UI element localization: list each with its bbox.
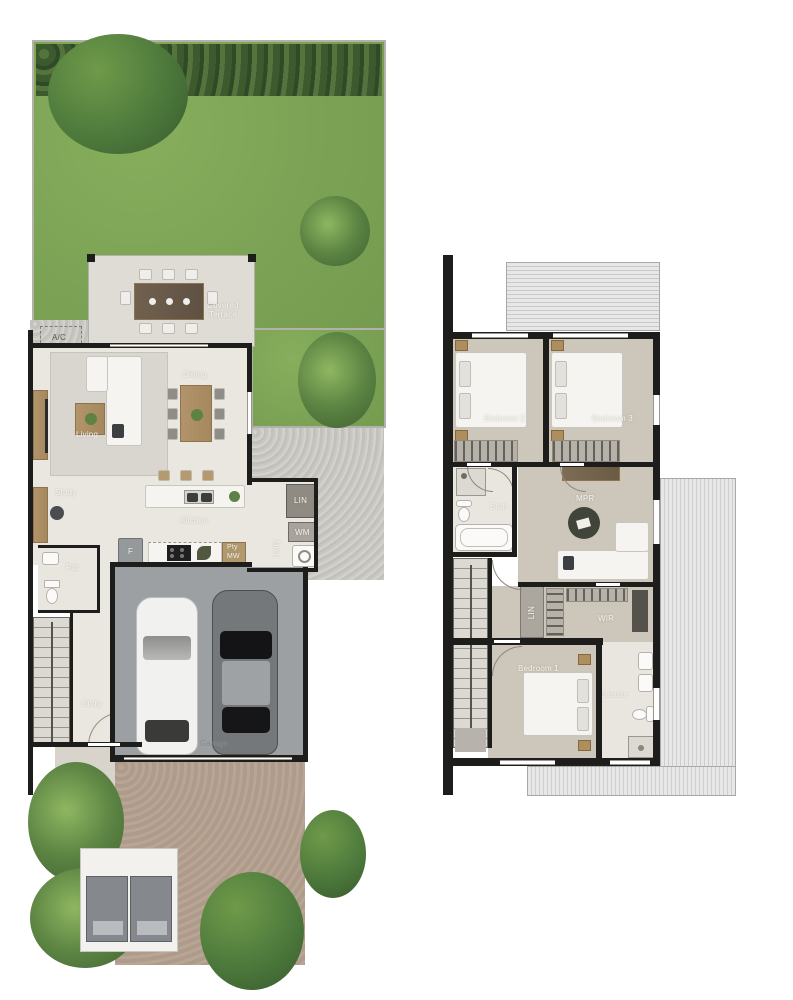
wall [247,478,318,482]
linen-label: LIN [294,496,307,505]
wir-hanging-clothes [566,588,628,602]
pillow [577,707,589,731]
plate [166,298,173,305]
ac-label: A/C [52,333,66,342]
linen-closet: LIN [286,484,316,518]
stair-rail [51,622,53,742]
car-rear-window [145,720,189,742]
laundry-label: Ldry [272,539,281,555]
cooktop [167,545,191,561]
large-tree [48,34,188,154]
roof-bottom [527,766,736,796]
wall [28,742,142,747]
wall [70,613,73,745]
sliding-door [110,344,208,347]
terrace-label: Covered Terrace [199,301,247,319]
window [472,333,528,338]
bin-lid [93,921,123,935]
bedside-table [578,740,591,751]
wall [596,638,602,766]
wall [97,545,100,613]
terrace-post [248,254,256,262]
study-label: Study [55,488,76,497]
street-tree [200,872,304,990]
wall [38,545,100,548]
wall [110,567,115,762]
window [553,333,628,338]
vanity-basin [638,652,653,670]
wall [443,638,603,645]
wm-label: WM [295,528,310,537]
window [653,688,660,720]
car-dark [212,590,278,755]
garage-label: Garage [200,739,228,748]
bath-toilet-tank [456,500,472,507]
pdr-label: Pdr [66,563,79,572]
door-gap [494,640,520,643]
bedroom3-label: Bedroom 3 [592,414,633,423]
garage-door [124,757,292,760]
table-plant [85,413,97,425]
bathtub-inner [460,528,508,547]
stair-landing [455,728,486,752]
bath-label: Bath [490,502,507,511]
wir-robe-column [546,588,564,636]
wall [38,610,100,613]
upper-floor-plan: Bedroom 2 Bedroom 3 MPR Bath LIN WIR Bed… [400,0,793,1000]
washing-machine: WM [288,522,316,542]
window [610,760,650,765]
car-windshield [220,631,272,659]
floorplan-canvas: { "ground": { "name": "Ground Floor Plan… [0,0,793,1000]
burner [180,548,184,552]
round-rug [568,507,600,539]
burner [170,554,174,558]
bin-unit [86,876,128,942]
stair-rail [470,565,472,743]
window [500,760,555,765]
covered-terrace: Covered Terrace [88,255,255,347]
dining-table [180,385,212,442]
pdr-toilet-bowl [46,588,58,604]
dining-chair [214,428,225,440]
kitchen-label: Kitchen [180,516,208,525]
entry-label: Entry [82,699,102,708]
wall [28,330,33,795]
dining-chair [167,428,178,440]
ground-floor-plan: A/C Covered Terrace Living [0,0,400,1000]
kitchen-bench [148,542,222,563]
car-rear-window [222,707,270,733]
bedside-table [551,340,564,351]
upper-linen-label: LIN [527,606,536,619]
pantry-label: Pty [227,544,238,552]
ensuite-toilet-bowl [632,709,647,720]
palm-cluster [298,332,376,428]
wall [512,466,517,554]
bedside-table [578,654,591,665]
outdoor-table [134,283,204,320]
outdoor-chair [185,323,198,334]
plate [149,298,156,305]
laundry-tub [292,545,316,567]
outdoor-chair [162,269,175,280]
plate [183,298,190,305]
car-windshield [143,636,191,660]
window [653,395,660,425]
living-label: Living [76,430,98,439]
wall [452,552,517,557]
fridge-label: F [128,547,133,556]
window [247,392,252,434]
dining-label: Dining [183,370,207,379]
kitchen-island [145,485,245,508]
sofa-chaise [86,356,108,392]
dining-chair [167,408,178,420]
pillow [577,679,589,703]
car-white [136,597,198,755]
pdr-basin [42,552,59,565]
staircase-ground [33,617,70,745]
upper-linen: LIN [520,586,544,638]
roof-side [660,478,736,768]
mpr-label: MPR [576,494,594,503]
ensuite-label: Ensuite [600,690,628,699]
microwave-label: MW [227,553,240,561]
ensuite-shower [628,736,654,758]
pillow [555,393,567,419]
wall [110,562,252,567]
outdoor-chair [185,269,198,280]
bar-stool [180,470,192,481]
wir-drawers [632,590,648,632]
bin-unit [130,876,172,942]
herb-plant [229,491,240,502]
staircase-upper [453,558,488,748]
roof-terrace-below [506,262,660,331]
outdoor-chair [139,269,152,280]
tv-unit [33,390,48,460]
burner [180,554,184,558]
outdoor-chair [162,323,175,334]
sink-bowl [201,493,212,502]
wall [543,336,549,466]
wall [303,567,308,762]
pillow [459,393,471,419]
magazine [576,517,591,529]
wall [488,558,492,748]
robe-bedroom2 [454,440,518,462]
bedroom2-label: Bedroom 2 [484,414,525,423]
bath-toilet-bowl [458,507,470,522]
tub-bowl [298,550,311,563]
fridge: F [118,538,143,565]
pantry-microwave: Pty MW [222,542,246,564]
decor-leaf [197,546,211,560]
bed [523,672,593,736]
wir-label: WIR [598,614,614,623]
door-gap [467,463,491,466]
sink-bowl [187,493,198,502]
side-shrubs [300,810,366,898]
burner [170,548,174,552]
outdoor-chair [139,323,152,334]
centerpiece [191,409,203,421]
wall [314,478,318,572]
sink [184,490,214,504]
throw-pillow [112,424,124,438]
vanity-basin [638,674,653,692]
shower-head [461,473,467,479]
desk-chair [50,506,64,520]
wall [518,582,660,587]
throw-pillow [563,556,574,570]
pillow [459,361,471,387]
bedside-table [455,340,468,351]
dining-chair [214,388,225,400]
tv-screen [45,399,48,453]
terrace-post [87,254,95,262]
pillow [555,361,567,387]
mpr-sofa-chaise [615,522,649,552]
car-roof [222,661,270,705]
window [653,500,660,544]
palm-tree [300,196,370,266]
door-gap [596,583,620,586]
shower-drain [638,745,644,751]
bathtub [455,524,513,551]
front-door [88,743,120,746]
door-gap [560,463,584,466]
dining-chair [167,388,178,400]
bar-stool [202,470,214,481]
study-desk [33,487,48,543]
outdoor-chair [120,291,131,305]
bar-stool [158,470,170,481]
bin-lid [137,921,167,935]
dining-chair [214,408,225,420]
pdr-toilet-tank [44,580,60,588]
robe-bedroom3 [552,440,620,462]
